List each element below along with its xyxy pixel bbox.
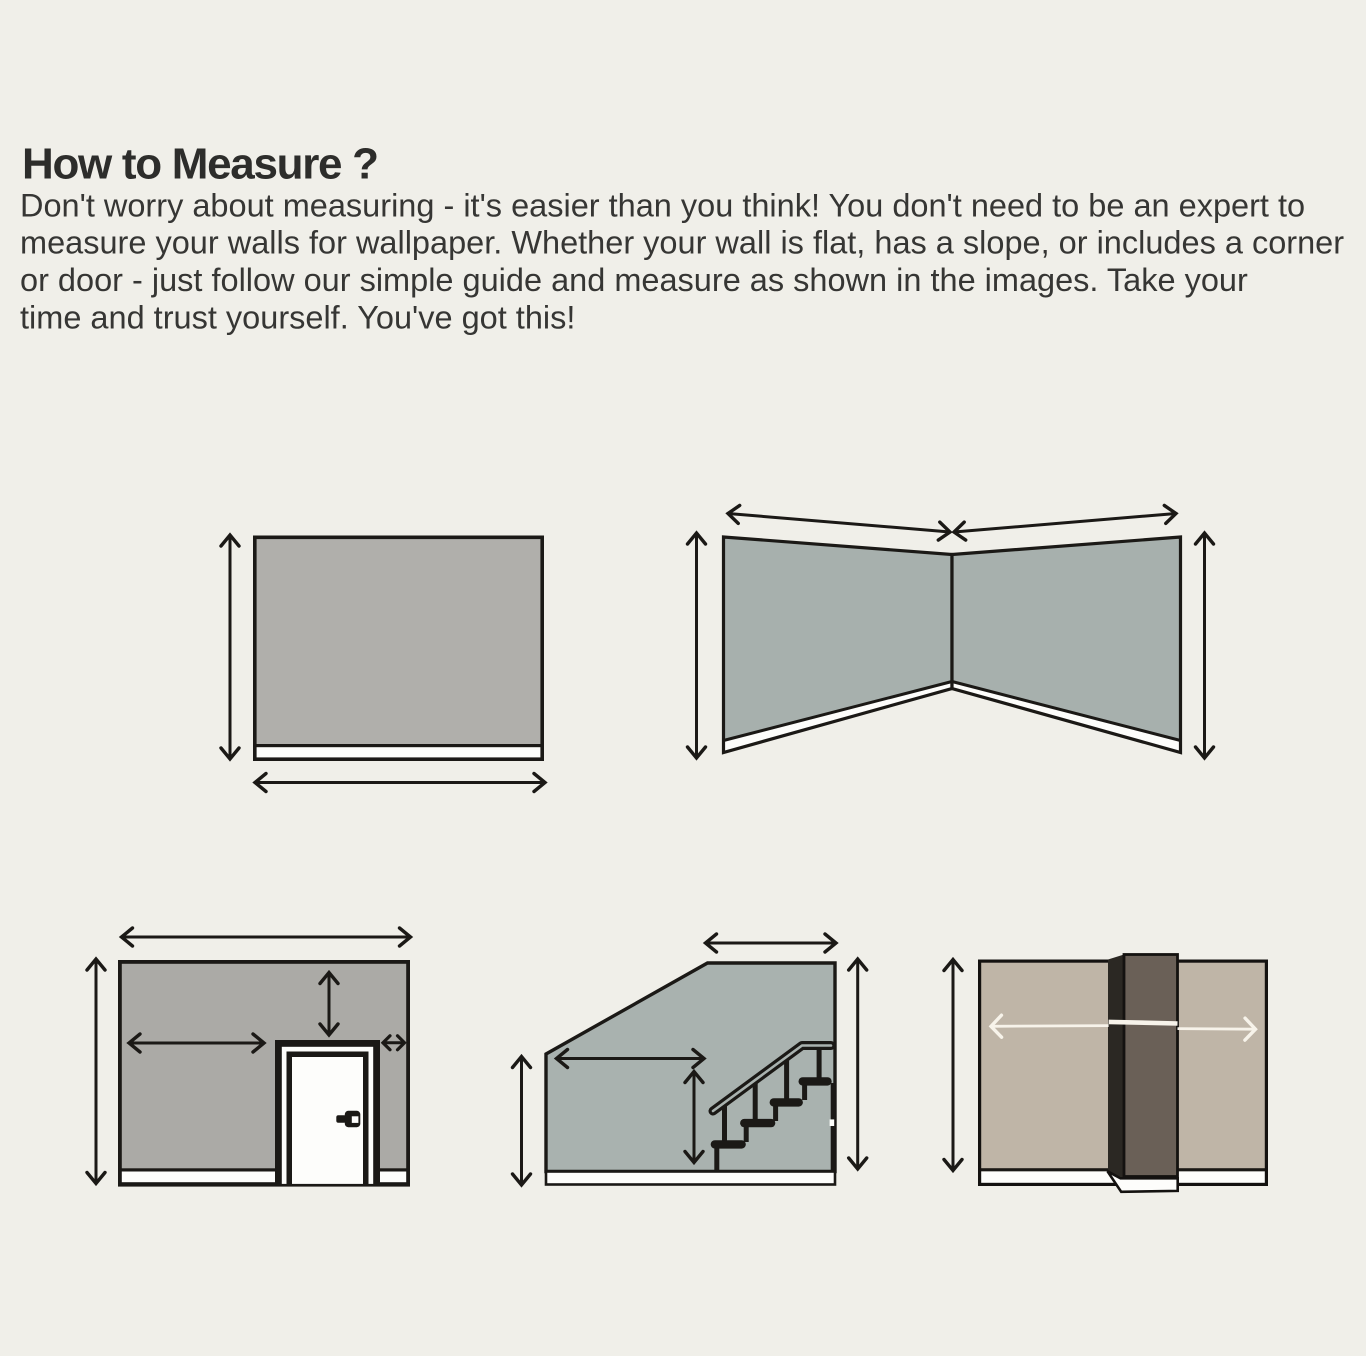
svg-text:measure your walls for wallpap: measure your walls for wallpaper. Whethe… <box>20 225 1344 261</box>
svg-text:How to Measure ?: How to Measure ? <box>22 140 378 189</box>
svg-text:or door - just follow our simp: or door - just follow our simple guide a… <box>20 262 1248 298</box>
svg-text:Don't worry about measuring -: Don't worry about measuring - it's easie… <box>20 187 1305 223</box>
svg-text:time and trust yourself. You'v: time and trust yourself. You've got this… <box>20 299 575 335</box>
